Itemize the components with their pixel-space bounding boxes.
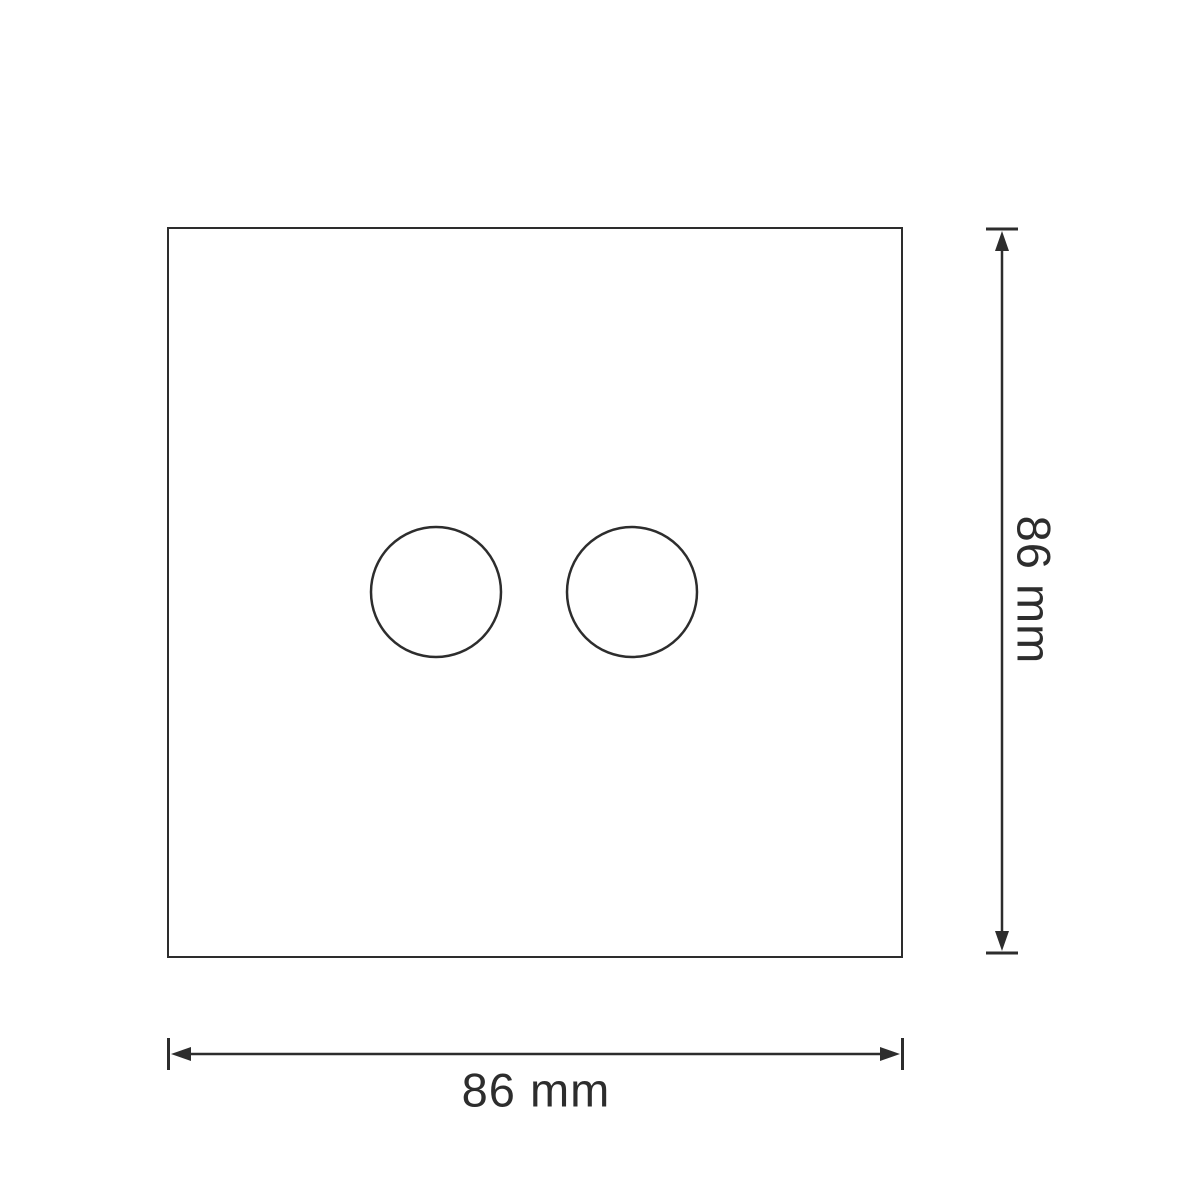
knob-circle-left xyxy=(371,527,501,657)
height-dimension: 86 mm xyxy=(986,229,1061,953)
knob-circle-right xyxy=(567,527,697,657)
drawing-svg: 86 mm 86 mm xyxy=(0,0,1200,1200)
dimension-drawing: 86 mm 86 mm xyxy=(0,0,1200,1200)
width-dimension-label: 86 mm xyxy=(462,1064,611,1117)
height-dimension-arrow-up-icon xyxy=(995,231,1009,251)
height-dimension-arrow-down-icon xyxy=(995,931,1009,951)
width-dimension-arrow-left-icon xyxy=(171,1047,191,1061)
width-dimension-arrow-right-icon xyxy=(880,1047,900,1061)
plate-outline xyxy=(168,228,902,957)
height-dimension-label: 86 mm xyxy=(1008,516,1061,665)
width-dimension: 86 mm xyxy=(169,1038,903,1117)
